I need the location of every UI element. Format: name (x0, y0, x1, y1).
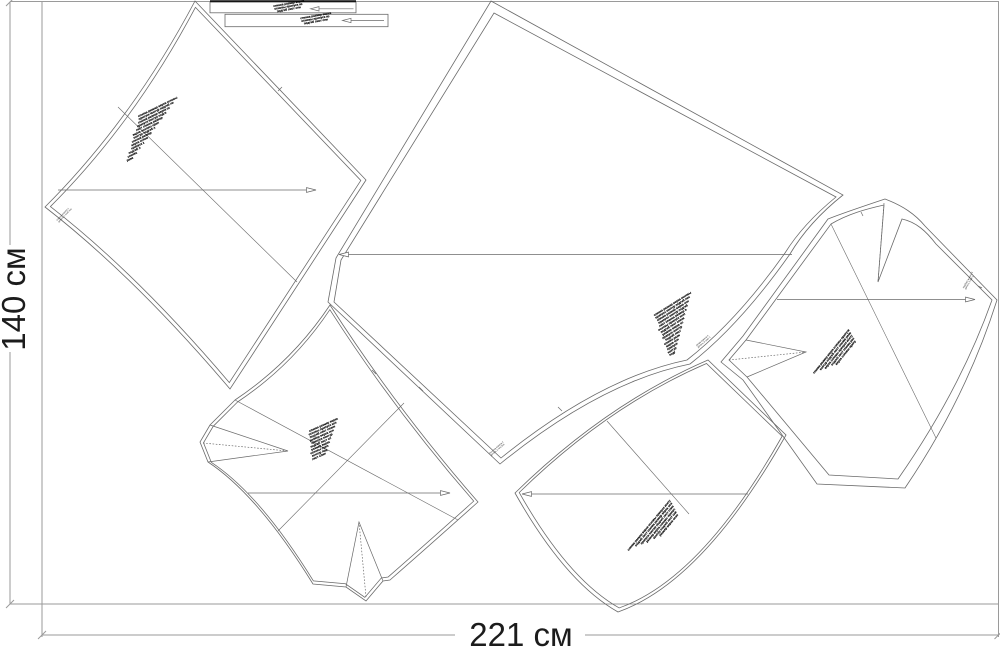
svg-text:221 см: 221 см (469, 616, 572, 648)
svg-text:140 см: 140 см (0, 247, 32, 350)
